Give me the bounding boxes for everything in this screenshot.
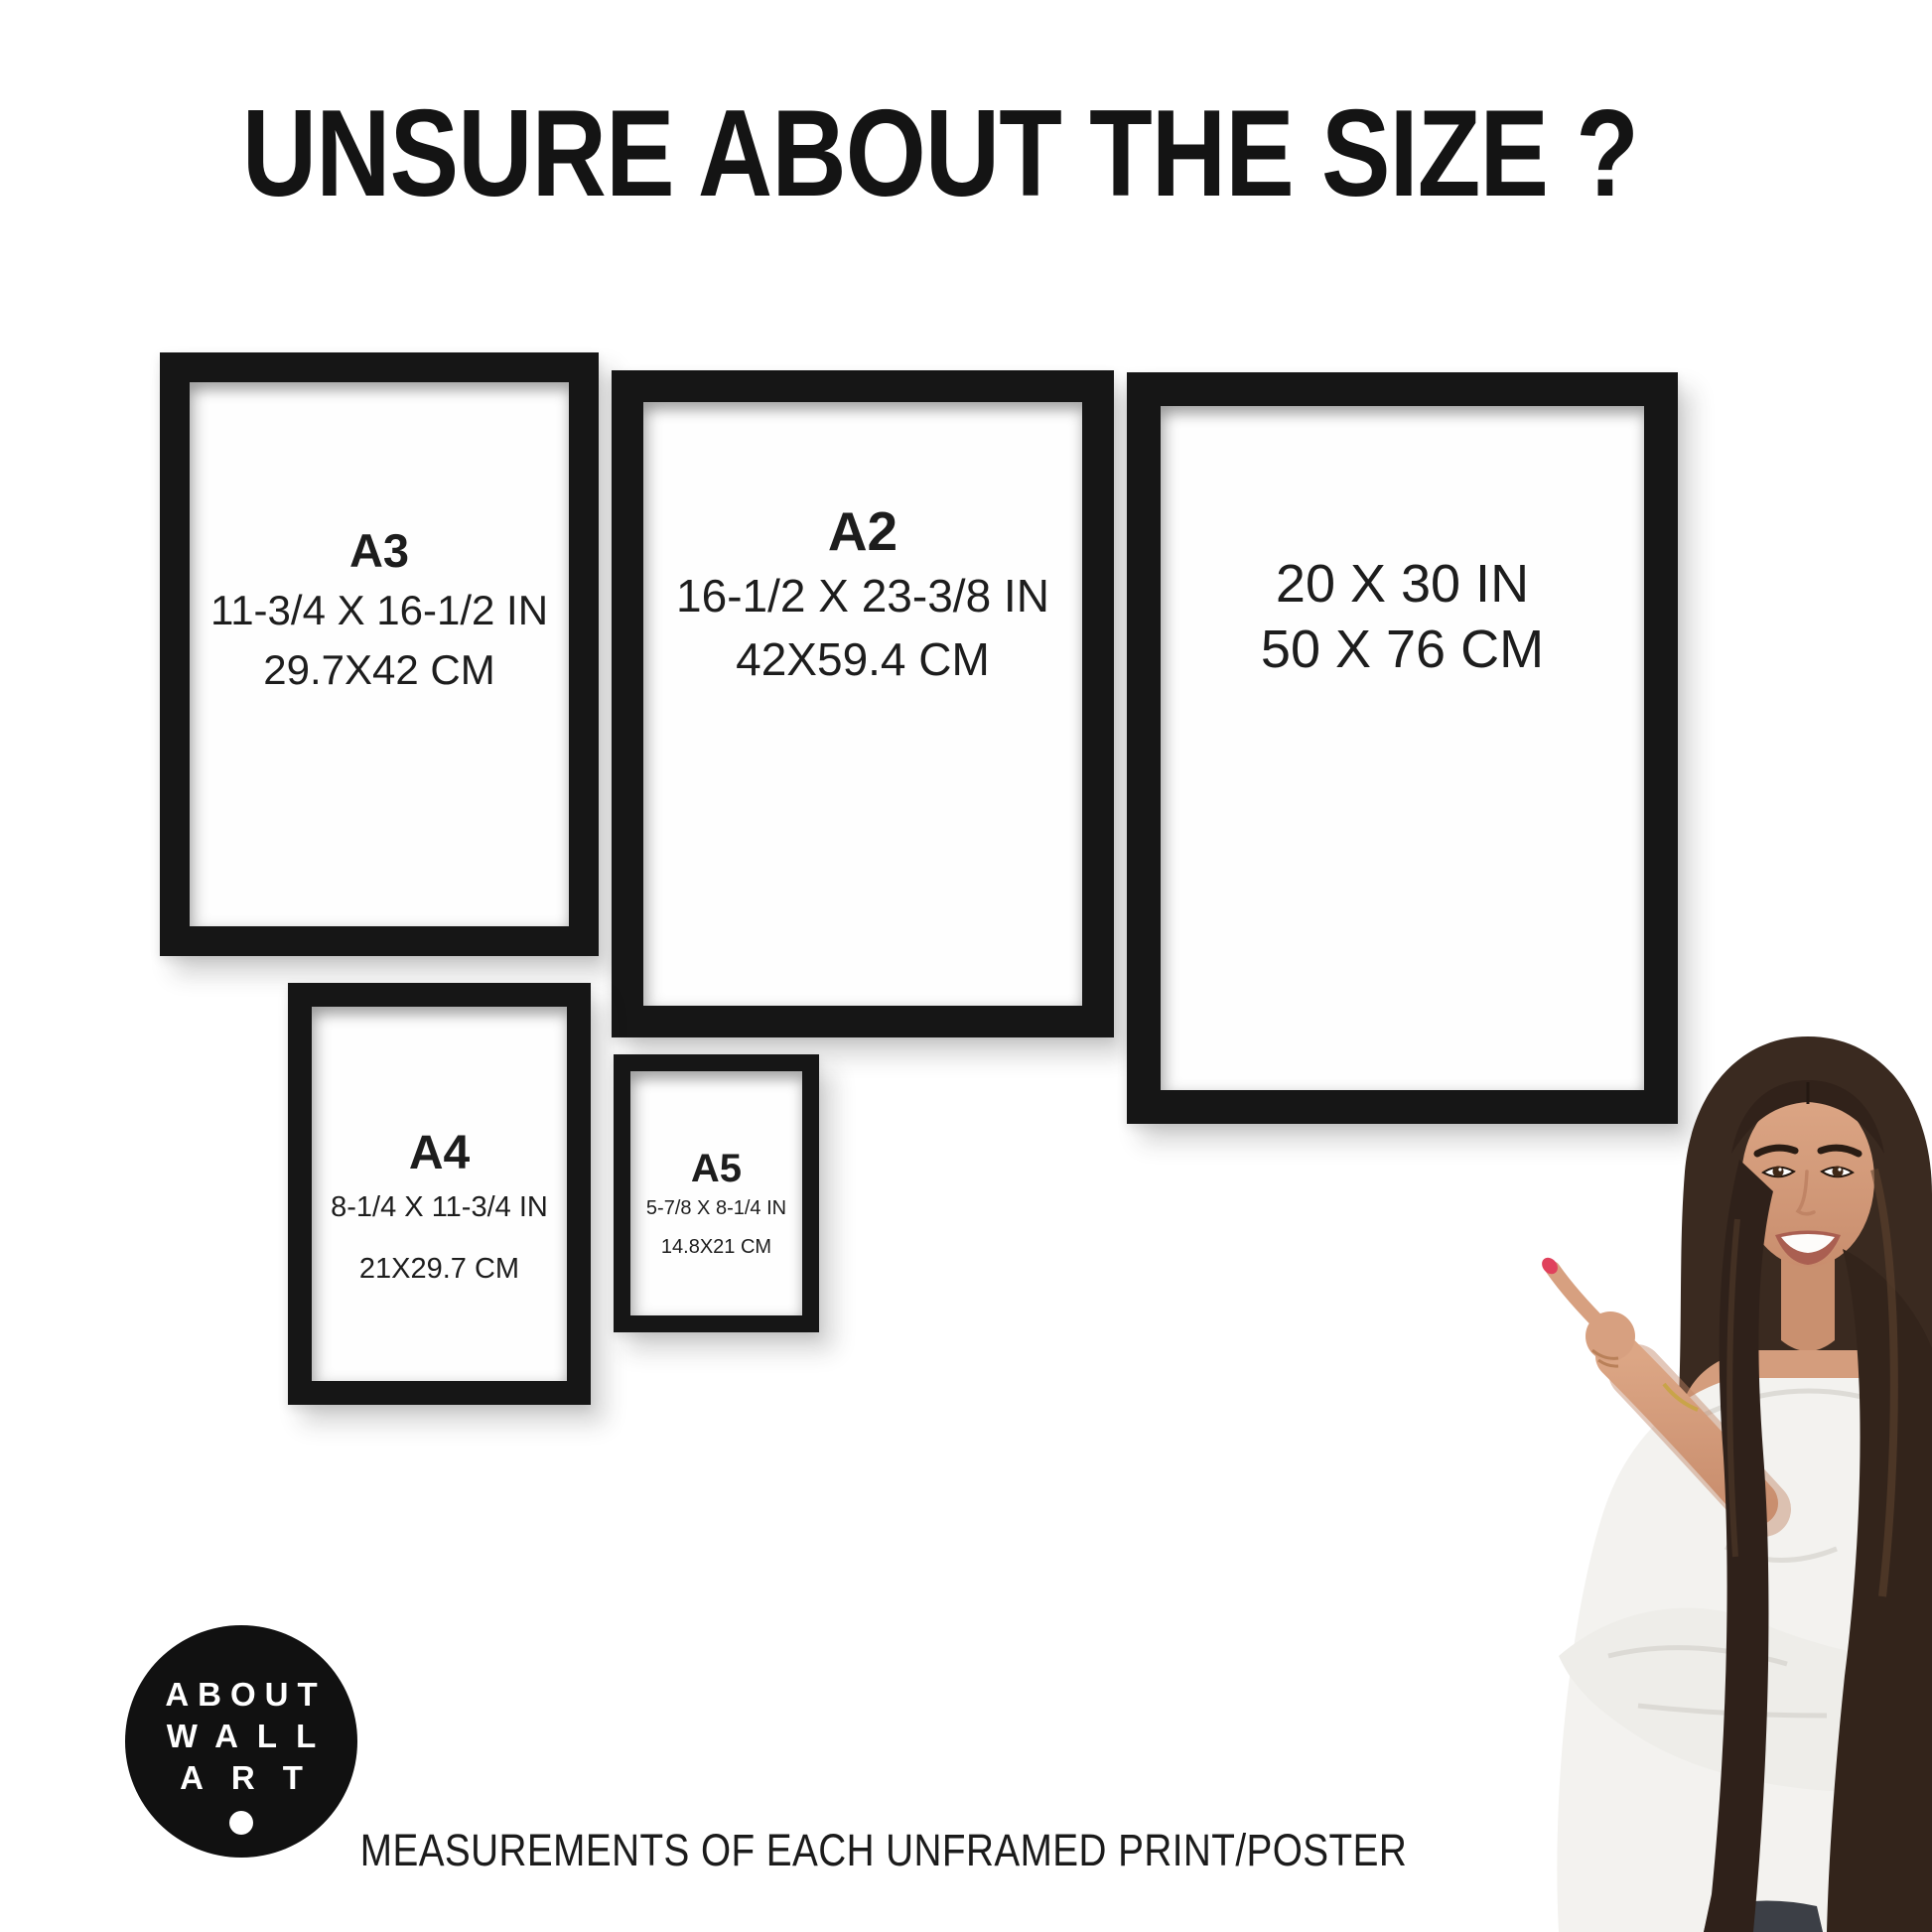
frame-a5-text: A5 5-7/8 X 8-1/4 IN 14.8X21 CM [646, 1144, 786, 1263]
frame-a2-paper: A2 16-1/2 X 23-3/8 IN 42X59.4 CM [643, 402, 1082, 1006]
frame-a3-inches: 11-3/4 X 16-1/2 IN [210, 581, 548, 640]
frame-a2-text: A2 16-1/2 X 23-3/8 IN 42X59.4 CM [676, 498, 1049, 691]
frame-a5-label: A5 [646, 1144, 786, 1193]
frame-20x30-inches: 20 X 30 IN [1261, 551, 1544, 617]
frame-20x30-text: 20 X 30 IN 50 X 76 CM [1261, 551, 1544, 682]
frame-a4: A4 8-1/4 X 11-3/4 IN 21X29.7 CM [288, 983, 591, 1405]
frame-a4-paper: A4 8-1/4 X 11-3/4 IN 21X29.7 CM [312, 1007, 567, 1381]
frame-20x30-paper: 20 X 30 IN 50 X 76 CM [1161, 406, 1644, 1090]
frame-a2: A2 16-1/2 X 23-3/8 IN 42X59.4 CM [612, 370, 1114, 1037]
frame-a5-cm: 14.8X21 CM [646, 1232, 786, 1263]
logo-line-2: WALL [148, 1716, 335, 1757]
frame-a4-text: A4 8-1/4 X 11-3/4 IN 21X29.7 CM [331, 1123, 548, 1292]
frame-a5-inches: 5-7/8 X 8-1/4 IN [646, 1193, 786, 1224]
bottom-caption: MEASUREMENTS OF EACH UNFRAMED PRINT/POST… [53, 1825, 1715, 1876]
frame-a3-text: A3 11-3/4 X 16-1/2 IN 29.7X42 CM [210, 521, 548, 700]
frame-a2-inches: 16-1/2 X 23-3/8 IN [676, 564, 1049, 627]
frame-a3-label: A3 [210, 521, 548, 581]
logo-line-1: ABOUT [148, 1674, 335, 1716]
frame-a2-cm: 42X59.4 CM [676, 627, 1049, 691]
frame-a4-cm: 21X29.7 CM [331, 1246, 548, 1292]
frame-a2-label: A2 [676, 498, 1049, 564]
frame-a3-cm: 29.7X42 CM [210, 640, 548, 700]
page-title: UNSURE ABOUT THE SIZE ? [129, 83, 1752, 224]
frame-a4-label: A4 [331, 1123, 548, 1184]
frame-a3: A3 11-3/4 X 16-1/2 IN 29.7X42 CM [160, 352, 599, 956]
frame-20x30: 20 X 30 IN 50 X 76 CM [1127, 372, 1678, 1124]
frame-a4-inches: 8-1/4 X 11-3/4 IN [331, 1184, 548, 1230]
frame-20x30-cm: 50 X 76 CM [1261, 617, 1544, 682]
logo-text: ABOUT WALL ART [148, 1674, 335, 1799]
logo-line-3: ART [148, 1757, 335, 1799]
frame-a5-paper: A5 5-7/8 X 8-1/4 IN 14.8X21 CM [630, 1071, 802, 1315]
frame-a5: A5 5-7/8 X 8-1/4 IN 14.8X21 CM [614, 1054, 819, 1332]
size-guide-infographic: UNSURE ABOUT THE SIZE ? A3 11-3/4 X 16-1… [0, 0, 1932, 1932]
about-wall-art-logo: ABOUT WALL ART [125, 1625, 357, 1858]
frame-a3-paper: A3 11-3/4 X 16-1/2 IN 29.7X42 CM [190, 382, 569, 926]
woman-pointing-illustration [1489, 1021, 1932, 1932]
